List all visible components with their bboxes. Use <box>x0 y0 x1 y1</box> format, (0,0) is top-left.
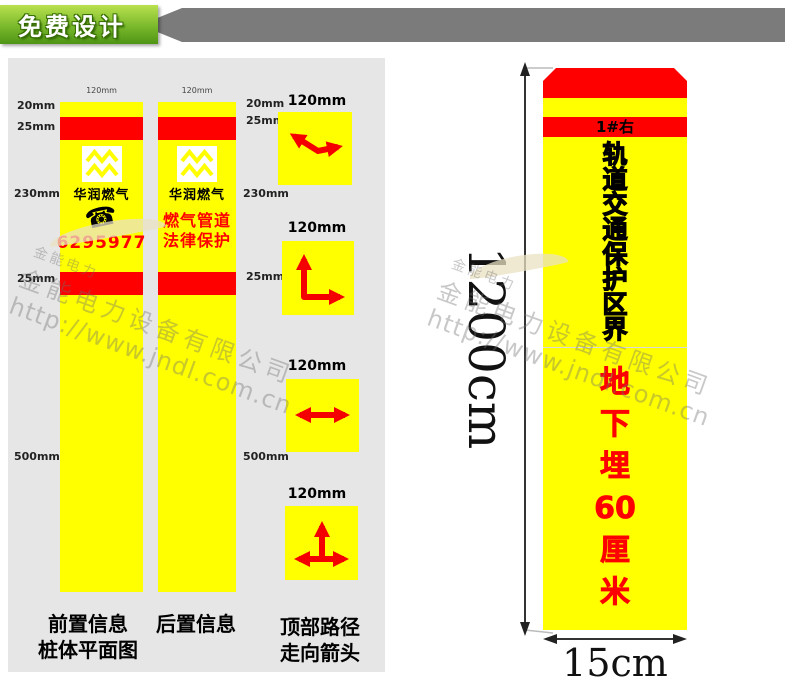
path-arrow-bend-icon <box>278 112 352 185</box>
design-proof-image: 免费设计 120mm 华润燃气 ☎ 6295977 20mm 25mm 230m… <box>0 0 785 684</box>
post-red-char: 下 <box>600 404 630 446</box>
post-char: 界 <box>602 317 627 342</box>
post-char: 交 <box>602 192 627 217</box>
back-post-dim-230mm: 230mm <box>243 187 289 200</box>
post-char: 轨 <box>602 142 627 167</box>
post-red-char: 60 <box>594 488 636 530</box>
back-post-bottom-red-stripe <box>158 272 236 295</box>
gas-company-logo-icon <box>82 146 122 182</box>
front-post-dim-230mm: 230mm <box>14 187 60 200</box>
post-red-char: 厘 <box>600 530 630 572</box>
post-red-char: 地 <box>600 362 630 404</box>
arrow-square-3-label: 120mm <box>278 358 356 374</box>
back-post-width-label: 120mm <box>158 86 236 95</box>
front-post-caption: 前置信息 桩体平面图 <box>20 611 156 663</box>
arrow-column-caption: 顶部路径 走向箭头 <box>268 614 372 666</box>
path-arrow-corner-icon <box>282 241 354 315</box>
post-red-cap <box>543 68 687 98</box>
arrow-square-4-label: 120mm <box>278 486 356 502</box>
gas-company-logo-icon <box>177 146 217 182</box>
front-post-dim-25mm: 25mm <box>17 120 55 133</box>
back-post-buried-section <box>158 295 236 592</box>
front-post-diagram: 华润燃气 ☎ 6295977 <box>60 102 143 592</box>
back-post-dim-500mm: 500mm <box>243 450 289 463</box>
arrow-square-2-label: 120mm <box>278 220 356 236</box>
front-post-top-red-stripe <box>60 117 143 140</box>
width-dimension-label: 15cm <box>553 641 677 684</box>
back-post-top-red-stripe <box>158 117 236 140</box>
post-main-text: 轨 道 交 通 保 护 区 界 <box>543 137 687 347</box>
free-design-ribbon: 免费设计 <box>0 5 158 44</box>
front-post-dim-25mm-2: 25mm <box>17 272 55 285</box>
front-post-bottom-red-stripe <box>60 272 143 295</box>
front-post-buried-section <box>60 295 143 592</box>
post-red-char: 埋 <box>600 446 630 488</box>
post-char: 区 <box>602 292 627 317</box>
front-post-dim-500mm: 500mm <box>14 450 60 463</box>
back-post-top-yellow <box>158 102 236 117</box>
post-char: 通 <box>602 217 627 242</box>
front-post-content: 华润燃气 ☎ 6295977 <box>60 140 143 272</box>
back-post-dim-25mm-2: 25mm <box>246 270 284 283</box>
path-arrow-straight-icon <box>286 379 359 452</box>
back-post-content: 华润燃气 燃气管道 法律保护 <box>158 140 236 272</box>
rail-transit-marker-post: 1#右 轨 道 交 通 保 护 区 界 地 下 埋 60 厘 米 <box>543 68 687 630</box>
post-char: 道 <box>602 167 627 192</box>
ribbon-gray-band <box>140 8 785 42</box>
height-dimension-line <box>513 60 557 638</box>
back-post-text-line1: 燃气管道 <box>163 211 231 231</box>
post-buried-text: 地 下 埋 60 厘 米 <box>543 348 687 630</box>
post-red-char: 米 <box>600 572 630 614</box>
path-arrow-tee-icon <box>285 506 358 580</box>
front-post-dim-20mm: 20mm <box>17 99 55 112</box>
post-char: 护 <box>602 267 627 292</box>
post-number-band: 1#右 <box>543 117 687 137</box>
back-post-caption: 后置信息 <box>148 611 244 637</box>
back-post-diagram: 华润燃气 燃气管道 法律保护 <box>158 102 236 592</box>
arrow-square-1-label: 120mm <box>278 93 356 109</box>
back-post-text-line2: 法律保护 <box>163 231 231 251</box>
front-post-brand: 华润燃气 <box>73 184 129 203</box>
arrow-caption-line1: 顶部路径 <box>268 614 372 640</box>
back-post-brand: 华润燃气 <box>169 184 225 203</box>
arrow-caption-line2: 走向箭头 <box>268 640 372 666</box>
front-post-caption-line1: 前置信息 <box>20 611 156 637</box>
front-post-top-yellow <box>60 102 143 117</box>
front-post-width-label: 120mm <box>60 86 143 95</box>
post-yellow-band <box>543 98 687 117</box>
post-char: 保 <box>602 242 627 267</box>
front-post-caption-line2: 桩体平面图 <box>20 637 156 663</box>
free-design-label: 免费设计 <box>18 7 126 42</box>
